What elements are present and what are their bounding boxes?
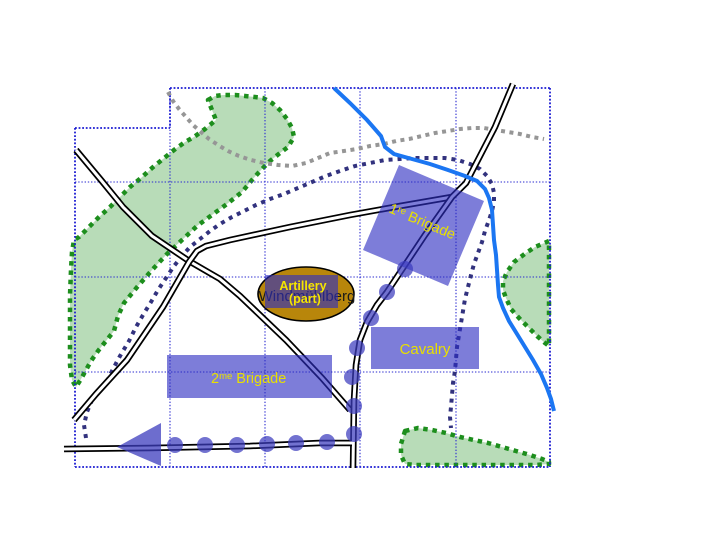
svg-text:(part): (part)	[289, 292, 321, 306]
svg-text:Artillery: Artillery	[279, 279, 326, 293]
svg-text:Cavalry: Cavalry	[400, 341, 451, 358]
